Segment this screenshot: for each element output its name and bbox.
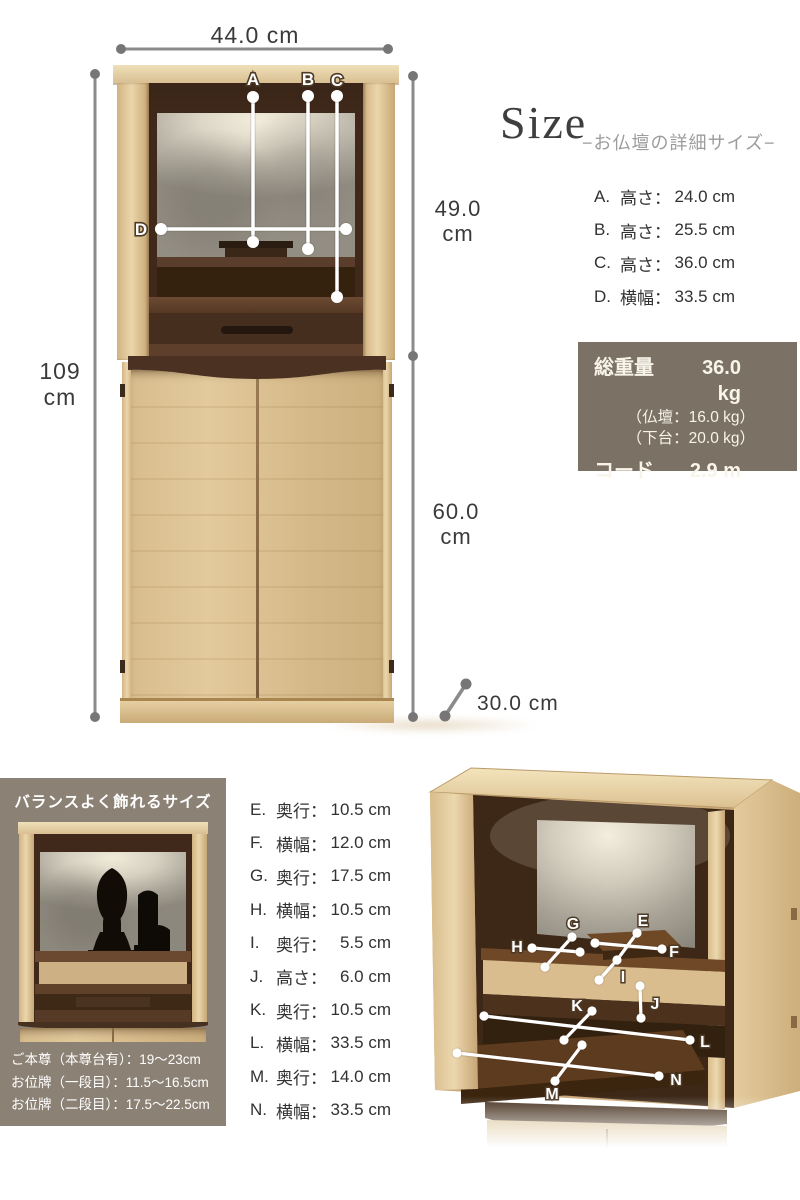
hinge-mark — [120, 384, 125, 397]
detail-label-j: J — [651, 996, 660, 1013]
cord-row: コード 2.9 m — [594, 458, 783, 484]
upper-right-stile — [363, 83, 395, 360]
drawer-handle — [221, 326, 293, 334]
mini-door-gap — [112, 1028, 114, 1042]
measure-key: G. — [250, 866, 276, 886]
measure-name: 横幅： — [276, 1031, 327, 1056]
mini-bottom-rail — [35, 1010, 191, 1022]
measure-key: J. — [250, 967, 276, 987]
weight-label: 総重量 — [594, 355, 682, 407]
dim-upper-height-label: 49.0 cm — [424, 196, 492, 246]
balance-panel-title: バランスよく飾れるサイズ — [0, 790, 226, 812]
detail-left-stile — [430, 792, 478, 1090]
measure-name: 高さ： — [620, 251, 671, 276]
mini-step — [35, 984, 191, 994]
cord-label: コード — [594, 458, 682, 484]
measure-value: 24.0 cm — [673, 187, 735, 207]
dim-lower-height-label: 60.0 cm — [422, 499, 490, 549]
measure-value: 12.0 cm — [329, 833, 391, 853]
dim-width-label: 44.0 cm — [175, 22, 335, 49]
measure-key: A. — [594, 187, 620, 207]
measure-row: L. 横幅： 33.5 cm — [250, 1027, 391, 1060]
measure-value: 5.5 cm — [329, 933, 391, 953]
measure-row: A. 高さ： 24.0 cm — [594, 180, 735, 213]
measure-row: C. 高さ： 36.0 cm — [594, 247, 735, 280]
measure-value: 14.0 cm — [329, 1067, 391, 1087]
dim-depth-label: 30.0 cm — [477, 692, 559, 716]
balance-size-panel: バランスよく飾れるサイズ — [0, 778, 226, 1126]
detail-back-panel — [537, 820, 695, 948]
balance-line-3: お位牌（二段目）：17.5～22.5cm — [11, 1093, 210, 1113]
hinge-mark — [389, 660, 394, 673]
measure-name: 奥行： — [276, 1064, 327, 1089]
dim-total-height-label: 109 cm — [24, 358, 96, 410]
measure-row: D. 横幅： 33.5 cm — [594, 280, 735, 313]
weight-detail-upper: （仏壇：16.0 kg） — [594, 407, 783, 428]
measure-value: 33.5 cm — [329, 1033, 391, 1053]
cord-value: 2.9 m — [682, 458, 783, 484]
lower-valance — [128, 356, 386, 384]
cabinet-detail-photo: E F G H I J K L M N — [425, 758, 800, 1148]
balance-photo — [18, 820, 208, 1042]
detail-right-side — [734, 780, 800, 1108]
detail-label-g: G — [567, 916, 579, 933]
detail-label-f: F — [669, 944, 679, 961]
buddha-statue-silhouette — [93, 868, 131, 950]
measure-row: B. 高さ： 25.5 cm — [594, 213, 735, 246]
measure-key: B. — [594, 220, 620, 240]
mini-shelf — [35, 951, 191, 962]
photo-bottom-fade — [425, 1096, 800, 1148]
measure-value: 36.0 cm — [673, 253, 735, 273]
measure-row: G. 奥行： 17.5 cm — [250, 860, 391, 893]
measure-value: 33.5 cm — [673, 287, 735, 307]
measure-key: D. — [594, 287, 620, 307]
measure-value: 17.5 cm — [329, 866, 391, 886]
altar-shelf-ledge — [157, 257, 355, 267]
upper-shelf-edge — [148, 297, 364, 313]
measure-value: 10.5 cm — [329, 1000, 391, 1020]
hinge-mark — [120, 660, 125, 673]
mini-drawer — [76, 997, 150, 1007]
measure-row: N. 横幅： 33.5 cm — [250, 1094, 391, 1127]
measure-value: 10.5 cm — [329, 900, 391, 920]
door-center-gap — [256, 374, 259, 698]
measure-key: M. — [250, 1067, 276, 1087]
altar-back-panel — [157, 113, 355, 259]
measure-name: 奥行： — [276, 931, 327, 956]
measure-name: 高さ： — [620, 184, 671, 209]
mini-riser — [39, 962, 187, 984]
detail-label-l: L — [700, 1034, 710, 1051]
measure-value: 6.0 cm — [329, 967, 391, 987]
detail-hinge-mark — [791, 1016, 797, 1028]
detail-label-i: I — [621, 969, 625, 986]
measure-name: 高さ： — [620, 218, 671, 243]
detail-label-e: E — [638, 913, 649, 930]
weight-spec-box: 総重量 36.0 kg （仏壇：16.0 kg） （下台：20.0 kg） コー… — [578, 342, 797, 471]
measure-row: F. 横幅： 12.0 cm — [250, 826, 391, 859]
balance-line-2: お位牌（一段目）：11.5～16.5cm — [11, 1071, 209, 1091]
altar-interior-floor — [157, 267, 355, 298]
hinge-mark — [389, 384, 394, 397]
measure-row: J. 高さ： 6.0 cm — [250, 960, 391, 993]
detail-label-k: K — [571, 998, 583, 1015]
weight-detail-lower: （下台：20.0 kg） — [594, 428, 783, 449]
measure-value: 33.5 cm — [329, 1100, 391, 1120]
measure-key: E. — [250, 800, 276, 820]
measure-name: 横幅： — [620, 284, 671, 309]
detail-label-h: H — [511, 939, 523, 956]
measure-row: I. 奥行： 5.5 cm — [250, 927, 391, 960]
size-heading: Size — [500, 96, 587, 149]
measure-name: 横幅： — [276, 897, 327, 922]
measure-key: H. — [250, 900, 276, 920]
weight-value: 36.0 kg — [682, 355, 783, 407]
measure-value: 25.5 cm — [673, 220, 735, 240]
mini-left-stile — [19, 834, 34, 1022]
measure-key: N. — [250, 1100, 276, 1120]
measure-name: 高さ： — [276, 964, 327, 989]
upper-left-stile — [117, 83, 149, 360]
measure-row: K. 奥行： 10.5 cm — [250, 993, 391, 1026]
measure-name: 横幅： — [276, 831, 327, 856]
detail-label-n: N — [670, 1072, 682, 1089]
product-size-page: A B C D 44.0 cm 109 cm 49.0 cm 60.0 cm 3… — [0, 0, 800, 1200]
measure-row: E. 奥行： 10.5 cm — [250, 793, 391, 826]
altar-dais-top — [219, 241, 293, 248]
measure-value: 10.5 cm — [329, 800, 391, 820]
floor-shadow — [320, 716, 540, 734]
measure-key: K. — [250, 1000, 276, 1020]
mini-right-stile — [192, 834, 207, 1022]
measure-name: 横幅： — [276, 1098, 327, 1123]
measure-name: 奥行： — [276, 797, 327, 822]
measure-name: 奥行： — [276, 864, 327, 889]
measure-list-front: A. 高さ： 24.0 cm B. 高さ： 25.5 cm C. 高さ： 36.… — [594, 180, 735, 314]
balance-line-1: ご本尊（本尊台有）：19～23cm — [11, 1048, 201, 1068]
detail-hinge-mark — [791, 908, 797, 920]
measure-key: L. — [250, 1033, 276, 1053]
size-subtitle: −お仏壇の詳細サイズ− — [582, 129, 775, 155]
measure-key: C. — [594, 253, 620, 273]
measure-name: 奥行： — [276, 998, 327, 1023]
measure-row: H. 横幅： 10.5 cm — [250, 893, 391, 926]
weight-row: 総重量 36.0 kg — [594, 355, 783, 407]
measure-key: I. — [250, 933, 276, 953]
measure-row: M. 奥行： 14.0 cm — [250, 1060, 391, 1093]
measure-key: F. — [250, 833, 276, 853]
upper-top-board — [113, 65, 399, 83]
measure-list-detail: E. 奥行： 10.5 cm F. 横幅： 12.0 cm G. 奥行： 17.… — [250, 793, 391, 1127]
